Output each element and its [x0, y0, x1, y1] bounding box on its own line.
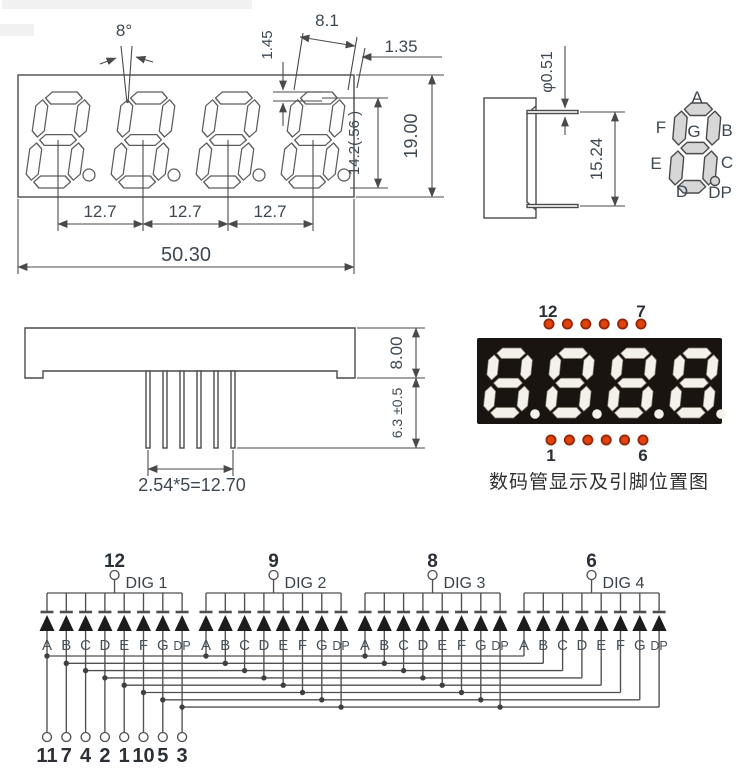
- led-diode-A: [199, 615, 214, 631]
- segment-pin-number: 2: [99, 745, 110, 767]
- dig-label: DIG 3: [444, 575, 486, 592]
- junction-dot: [141, 690, 146, 695]
- schematic-content: 12DIG 1A11B7C4D2E1F10G5DP39DIG 2ABCDEFGD…: [36, 551, 667, 767]
- led-diode-E: [435, 615, 450, 631]
- segment-pin-node: [43, 733, 52, 742]
- dim-body-thickness: 8.00: [387, 336, 406, 369]
- display-digit-dp-1: [530, 409, 540, 419]
- led-diode-B: [218, 615, 233, 631]
- pin-dot: [544, 319, 553, 328]
- led-diode-D: [574, 615, 589, 631]
- segment-pin-node: [158, 733, 167, 742]
- led-diode-D: [97, 615, 112, 631]
- led-diode-C: [396, 615, 411, 631]
- led-diode-E: [594, 615, 609, 631]
- dim-tilt-angle: 8°: [116, 21, 132, 40]
- pin-dot: [581, 319, 590, 328]
- led-diode-E: [117, 615, 132, 631]
- dim-pin-diameter: φ0.51: [539, 51, 556, 93]
- internal-circuit-schematic: 12DIG 1A11B7C4D2E1F10G5DP39DIG 2ABCDEFGD…: [0, 523, 750, 783]
- digit-group-4: 6DIG 4ABCDEFGDP: [519, 551, 668, 654]
- segment-label-d: D: [676, 182, 688, 201]
- top-pin-dots: [544, 319, 645, 328]
- segment-pin-node: [178, 733, 187, 742]
- segment-pin-number: 4: [80, 745, 92, 767]
- led-diode-C: [78, 615, 93, 631]
- junction-dot: [382, 661, 387, 666]
- led-diode-G: [473, 615, 488, 631]
- segment-pin-number: 1: [119, 745, 130, 767]
- pin-number-bottom-right: 6: [638, 446, 647, 465]
- led-diode-DP: [175, 615, 190, 631]
- dim-pitch-1: 12.7: [83, 202, 116, 221]
- dim-pitch-2: 12.7: [168, 202, 201, 221]
- junction-dot: [102, 675, 107, 680]
- junction-dot: [459, 690, 464, 695]
- dig-label: DIG 2: [285, 575, 327, 592]
- pin-dot: [636, 319, 645, 328]
- pin-dot: [546, 435, 555, 444]
- junction-dot: [362, 653, 367, 658]
- junction-dot: [338, 704, 343, 709]
- segment-pin-number: 11: [36, 745, 57, 767]
- led-diode-C: [237, 615, 252, 631]
- led-diode-E: [276, 615, 291, 631]
- segment-pin-number: 5: [157, 745, 168, 767]
- junction-dot: [440, 683, 445, 688]
- side-view-drawing: φ0.51 15.24: [460, 40, 660, 230]
- display-digit-dp-2: [592, 409, 602, 419]
- pin-number-top-left: 12: [539, 302, 558, 321]
- segment-label-b: B: [721, 121, 732, 140]
- dim-digit-height: 14.2(.56 ): [346, 111, 363, 175]
- led-diode-G: [314, 615, 329, 631]
- led-diode-C: [555, 615, 570, 631]
- led-diode-B: [536, 615, 551, 631]
- pin-dot: [563, 319, 572, 328]
- junction-dot: [83, 668, 88, 673]
- junction-dot: [122, 683, 127, 688]
- junction-dot: [203, 653, 208, 658]
- junction-dot: [401, 668, 406, 673]
- dim-package-height: 19.00: [401, 113, 421, 158]
- pin-dot: [600, 319, 609, 328]
- pin-position-caption: 数码管显示及引脚位置图: [489, 471, 709, 493]
- segment-label-f: F: [656, 118, 666, 137]
- segment-identification-diagram: A F G B E C D DP: [640, 80, 750, 215]
- segment-pin-node: [120, 733, 129, 742]
- segment-label-e: E: [650, 154, 661, 173]
- display-digit-dp-3: [654, 409, 664, 419]
- segment-label-dp: DP: [708, 183, 732, 202]
- led-diode-F: [613, 615, 628, 631]
- dim-segment-thickness: 1.45: [259, 30, 276, 59]
- segment-label-g: G: [687, 122, 700, 141]
- dig-label: DIG 1: [126, 575, 168, 592]
- led-diode-G: [632, 615, 647, 631]
- front-digit-dp-1: [83, 169, 95, 181]
- pin-dot: [602, 435, 611, 444]
- common-pin-node: [428, 571, 437, 580]
- bottom-view-drawing: 8.00 6.3 ±0.5 2.54*5=12.70: [0, 300, 440, 500]
- dig-label: DIG 4: [603, 575, 645, 592]
- front-digit-dp-2: [168, 169, 180, 181]
- common-pin-node: [587, 571, 596, 580]
- junction-dot: [261, 675, 266, 680]
- common-pin-number: 12: [104, 551, 125, 572]
- digit-group-1: 12DIG 1A11B7C4D2E1F10G5DP3: [36, 551, 190, 767]
- bottom-body-outline: [25, 328, 355, 378]
- common-pin-node: [269, 571, 278, 580]
- front-digit-dp-3: [253, 169, 265, 181]
- led-diode-A: [517, 615, 532, 631]
- junction-dot: [300, 690, 305, 695]
- datasheet-page: 8° 8.1 1.45 1.35 14.2(.56 ) 19.00 12.7 1…: [0, 0, 750, 783]
- junction-dot: [281, 683, 286, 688]
- led-diode-B: [59, 615, 74, 631]
- common-pin-number: 9: [268, 551, 279, 572]
- segment-label-c: C: [721, 153, 733, 172]
- pin-number-top-right: 7: [636, 302, 645, 321]
- front-view-drawing: 8° 8.1 1.45 1.35 14.2(.56 ) 19.00 12.7 1…: [0, 0, 460, 292]
- side-body-outline: [484, 98, 536, 218]
- dim-edge-gap: 1.35: [384, 37, 417, 56]
- common-pin-number: 6: [586, 551, 597, 572]
- digit-group-2: 9DIG 2ABCDEFGDP: [201, 551, 350, 654]
- segment-pin-node: [81, 733, 90, 742]
- segment-pin-node: [100, 733, 109, 742]
- led-diode-A: [40, 615, 55, 631]
- pin-dot: [618, 319, 627, 328]
- segment-pin-node: [62, 733, 71, 742]
- segment-pin-node: [139, 733, 148, 742]
- display-digit-dp-4: [716, 409, 726, 419]
- junction-dot: [478, 697, 483, 702]
- junction-dot: [420, 675, 425, 680]
- led-diode-G: [155, 615, 170, 631]
- dim-pin-pitch: 2.54*5=12.70: [138, 475, 246, 495]
- led-diode-F: [295, 615, 310, 631]
- led-diode-F: [136, 615, 151, 631]
- pin-dot: [583, 435, 592, 444]
- junction-dot: [223, 661, 228, 666]
- dim-pin-row-spacing: 15.24: [587, 138, 606, 181]
- pin-number-bottom-left: 1: [546, 446, 555, 465]
- pin-dot: [638, 435, 647, 444]
- bottom-pins: [146, 371, 235, 448]
- pin-dot: [565, 435, 574, 444]
- led-diode-D: [256, 615, 271, 631]
- digit-group-3: 8DIG 3ABCDEFGDP: [360, 551, 509, 654]
- junction-dot: [242, 668, 247, 673]
- common-pin-number: 8: [427, 551, 438, 572]
- led-diode-B: [377, 615, 392, 631]
- dim-digit-width: 8.1: [315, 11, 339, 30]
- front-view-digits: [24, 92, 350, 188]
- pin-position-diagram: 12 7 1 6 数码管显示及引脚位置图: [460, 295, 750, 510]
- led-diode-A: [358, 615, 373, 631]
- segment-pin-number: 10: [132, 745, 154, 767]
- led-diode-F: [454, 615, 469, 631]
- led-diode-D: [415, 615, 430, 631]
- segment-label-a: A: [691, 88, 703, 107]
- junction-dot: [319, 697, 324, 702]
- junction-dot: [64, 661, 69, 666]
- segment-pin-number: 3: [177, 745, 188, 767]
- junction-dot: [179, 704, 184, 709]
- dim-pin-length: 6.3 ±0.5: [389, 388, 405, 439]
- pin-dot: [620, 435, 629, 444]
- dim-pitch-3: 12.7: [253, 202, 286, 221]
- common-pin-node: [110, 571, 119, 580]
- side-pin-top: [527, 111, 578, 114]
- led-diode-DP: [493, 615, 508, 631]
- side-pin-bottom: [527, 205, 578, 208]
- dim-package-width: 50.30: [161, 244, 211, 266]
- led-diode-DP: [334, 615, 349, 631]
- junction-dot: [44, 653, 49, 658]
- led-diode-DP: [652, 615, 667, 631]
- junction-dot: [497, 704, 502, 709]
- junction-dot: [160, 697, 165, 702]
- bottom-pin-dots: [546, 435, 647, 444]
- segment-pin-number: 7: [61, 745, 72, 767]
